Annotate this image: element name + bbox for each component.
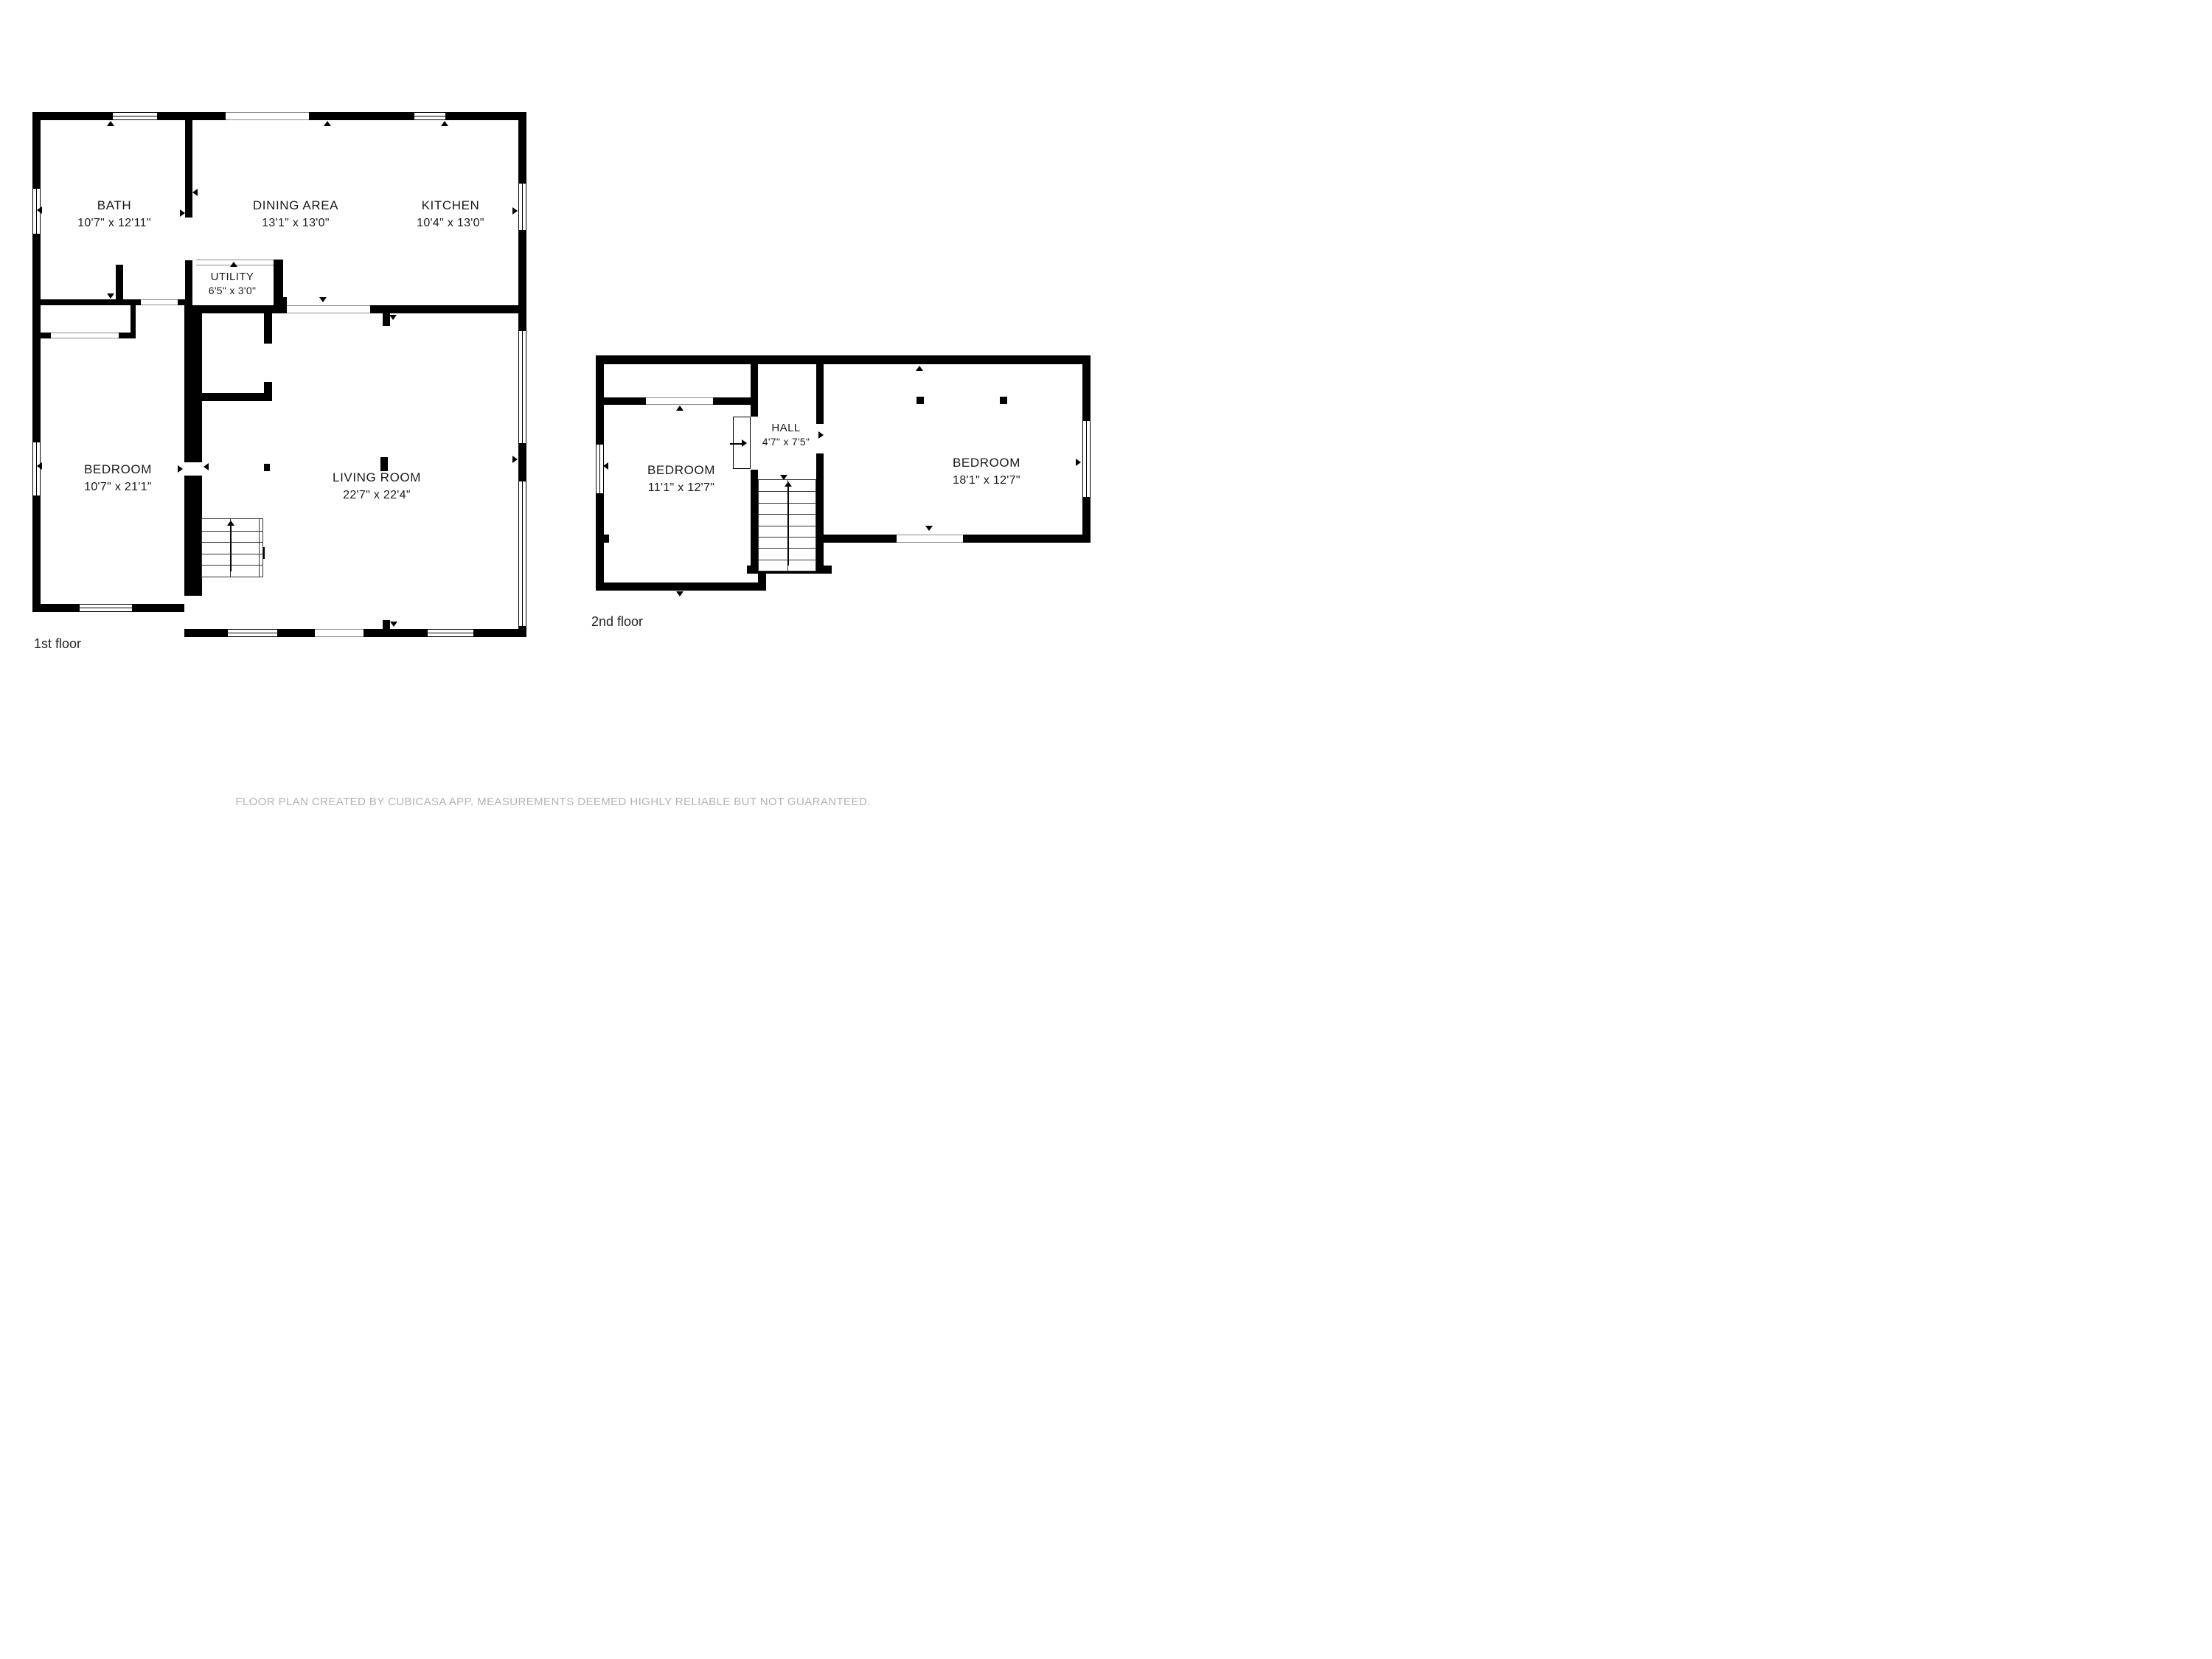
door-swing-marker [390, 622, 397, 627]
wall-segment [751, 470, 758, 566]
wall-segment [364, 629, 427, 637]
stairs [758, 479, 816, 571]
door-swing-marker [107, 121, 114, 126]
wall-segment [41, 333, 51, 338]
room-label-kitchen: KITCHEN 10'4" x 13'0" [417, 198, 484, 230]
room-dims: 10'7" x 12'11" [77, 217, 151, 230]
wall-segment [184, 476, 202, 596]
wall-segment [32, 112, 41, 612]
wall-segment [596, 535, 609, 543]
stair-tread [202, 542, 262, 543]
wall-segment [202, 393, 272, 401]
door-swing-marker [818, 431, 824, 439]
door-swing-marker [230, 307, 237, 312]
door-swing-marker [192, 189, 198, 196]
door-swing-marker [916, 366, 923, 371]
door-swing-marker [925, 526, 933, 531]
door-swing-marker [512, 456, 518, 463]
door-opening [315, 629, 364, 637]
room-label-living-room: LIVING ROOM 22'7" x 22'4" [333, 470, 421, 502]
wall-segment [758, 574, 766, 582]
floor-label-1st: 1st floor [34, 636, 81, 652]
room-dims: 18'1" x 12'7" [953, 474, 1020, 487]
door-swing-marker [676, 406, 684, 411]
window [518, 183, 526, 231]
window [518, 481, 526, 627]
door-swing-marker [319, 297, 327, 302]
room-label-hall: HALL 4'7" x 7'5" [762, 422, 810, 448]
wall-segment [963, 535, 1091, 543]
window [112, 112, 158, 120]
door-opening [897, 535, 963, 543]
door-swing-marker [180, 209, 185, 217]
wall-segment [283, 297, 287, 305]
room-name: BATH [77, 198, 151, 213]
door-opening [646, 397, 713, 405]
wall-segment [278, 629, 315, 637]
wall-segment [824, 535, 897, 543]
floor-plan-page: BATH 10'7" x 12'11" DINING AREA 13'1" x … [0, 0, 1106, 829]
door-opening [226, 112, 309, 120]
wall-segment [816, 453, 824, 574]
door-opening [51, 333, 119, 338]
room-name: DINING AREA [253, 198, 338, 213]
stair-tread [202, 531, 262, 532]
room-label-dining-area: DINING AREA 13'1" x 13'0" [253, 198, 338, 230]
door-swing-marker [204, 463, 209, 470]
wall-segment [264, 313, 272, 344]
door-opening [287, 305, 370, 313]
wall-segment [185, 120, 192, 218]
stair-arrow-head-icon [227, 521, 234, 526]
disclaimer-text: FLOOR PLAN CREATED BY CUBICASA APP. MEAS… [0, 796, 1106, 808]
window [79, 604, 133, 612]
wall-segment [380, 457, 388, 471]
stair-arrow-head-icon [785, 481, 792, 487]
door-swing-marker [37, 206, 42, 214]
wall-segment [383, 620, 390, 629]
room-label-bedroom-2f-left: BEDROOM 11'1" x 12'7" [647, 463, 715, 495]
door-swing-marker [603, 462, 608, 470]
room-dims: 6'5" x 3'0" [209, 285, 257, 296]
room-name: HALL [762, 422, 810, 434]
door-opening [141, 299, 178, 305]
door-swing-marker [1076, 459, 1081, 466]
wall-segment [596, 397, 646, 405]
room-dims: 13'1" x 13'0" [253, 217, 338, 230]
door-swing-marker [389, 315, 397, 320]
wall-segment [178, 299, 185, 305]
window [227, 629, 278, 637]
wall-segment [816, 355, 824, 424]
wall-segment [131, 305, 136, 333]
door-swing-marker [441, 121, 448, 126]
window [518, 330, 526, 444]
stair-tread [202, 565, 262, 566]
room-dims: 4'7" x 7'5" [762, 436, 810, 448]
window [1082, 420, 1091, 498]
door-swing-marker [676, 591, 684, 597]
wall-segment [370, 305, 526, 313]
floor-label-2nd: 2nd floor [591, 614, 643, 630]
room-dims: 10'4" x 13'0" [417, 217, 484, 230]
door-swing-marker [742, 439, 747, 447]
room-label-utility: UTILITY 6'5" x 3'0" [209, 271, 257, 296]
room-dims: 10'7" x 21'1" [84, 481, 152, 494]
wall-segment [1000, 397, 1007, 404]
stair-direction-arrow [787, 487, 789, 566]
door-swing-marker [274, 278, 279, 285]
wall-segment [184, 629, 227, 637]
door-swing-marker [186, 278, 191, 285]
window [427, 629, 474, 637]
door-opening [184, 596, 202, 629]
room-label-bath: BATH 10'7" x 12'11" [77, 198, 151, 230]
wall-segment [474, 629, 526, 637]
door-swing-marker [37, 462, 42, 470]
wall-segment [596, 355, 1091, 364]
wall-segment [917, 397, 924, 404]
room-name: BEDROOM [84, 462, 152, 477]
room-name: BEDROOM [953, 456, 1020, 470]
wall-segment [264, 464, 270, 471]
wall-segment [119, 333, 136, 338]
room-name: KITCHEN [417, 198, 484, 213]
wall-segment [32, 299, 141, 305]
room-dims: 22'7" x 22'4" [333, 489, 421, 502]
door-swing-marker [324, 121, 331, 126]
door-swing-marker [178, 465, 183, 473]
stair-tread [202, 554, 262, 554]
room-dims: 11'1" x 12'7" [647, 481, 715, 495]
wall-segment [596, 582, 766, 591]
wall-segment [184, 305, 202, 462]
stairs [201, 518, 263, 577]
room-label-bedroom-1f: BEDROOM 10'7" x 21'1" [84, 462, 152, 494]
room-name: LIVING ROOM [333, 470, 421, 485]
room-name: BEDROOM [647, 463, 715, 478]
stair-direction-arrow [230, 526, 232, 571]
door-swing-marker [512, 207, 518, 215]
door-swing-marker [230, 262, 237, 267]
room-label-bedroom-2f-right: BEDROOM 18'1" x 12'7" [953, 456, 1020, 487]
window [414, 112, 446, 120]
room-name: UTILITY [209, 271, 257, 283]
stair-rail-line [259, 519, 260, 577]
wall-segment [751, 364, 758, 417]
door-swing-marker [107, 293, 114, 299]
